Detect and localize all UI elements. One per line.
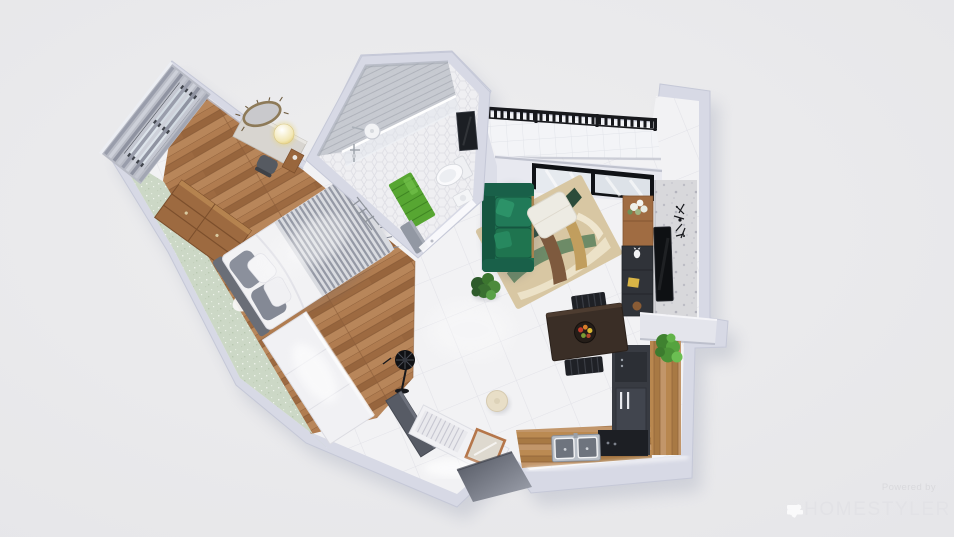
dining-table (546, 303, 628, 361)
wood-bowl (633, 302, 642, 311)
kitchen-cooktop-front (598, 430, 648, 456)
sink-faucet (574, 433, 578, 438)
floorplan-render: Powered by HOMESTYLER (0, 0, 954, 537)
kitchen-double-sink (552, 432, 601, 462)
sofa-backrest (482, 183, 495, 272)
screenshot-root: Powered by HOMESTYLER (0, 0, 954, 537)
living-green-sofa (482, 183, 542, 280)
bedroom-pendant-lamp (272, 122, 296, 146)
kitchen-microwave (615, 352, 647, 382)
wall-tv (654, 227, 674, 302)
yellow-book (627, 277, 639, 287)
bathroom-dark-mirror (456, 111, 477, 150)
living-tv-cabinet (622, 246, 653, 316)
living-wood-shelf (623, 196, 653, 246)
sofa-wood-trim (532, 196, 535, 258)
watermark-brand: HOMESTYLER (804, 499, 951, 520)
sofa-pillow (494, 231, 513, 250)
watermark-powered-by: Powered by (882, 482, 936, 493)
